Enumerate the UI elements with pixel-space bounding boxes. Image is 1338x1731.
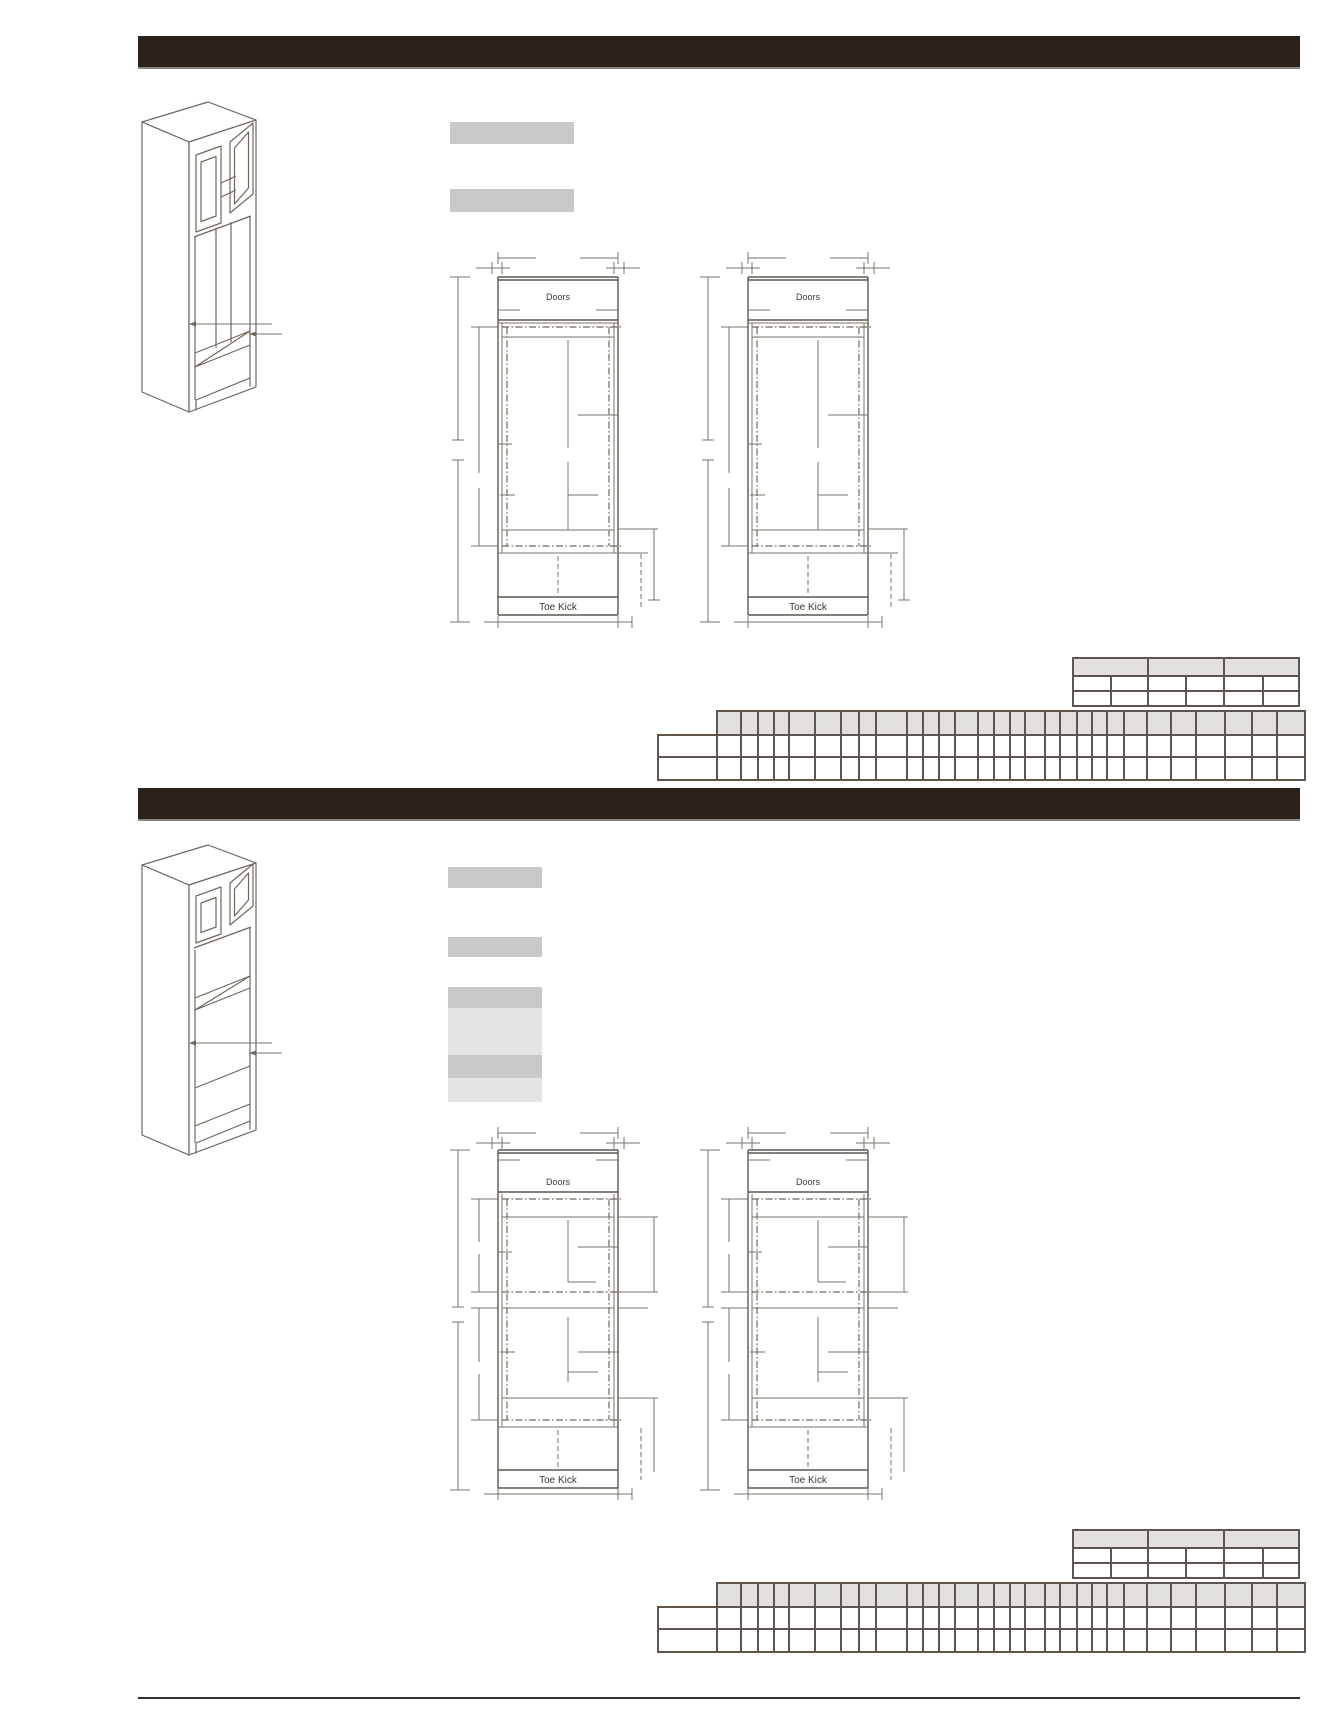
table-cell [1123,734,1148,758]
table-cell [1251,710,1278,736]
table-cell [1170,1606,1197,1630]
table-cell [1146,756,1172,781]
table-cell [788,1582,816,1608]
table-cell [814,1606,842,1630]
table-cell [954,1582,979,1608]
table-cell [1262,1562,1300,1579]
table-cell [1251,756,1278,781]
table-cell [1251,734,1278,758]
table-cell [814,1628,842,1653]
table-cell [1195,734,1226,758]
table-cell [1024,1606,1046,1630]
table-cell [954,1606,979,1630]
table-cell [1146,710,1172,736]
table-cell [1170,710,1197,736]
section2-elevation-right [686,1122,916,1502]
table-cell [716,1582,742,1608]
table-cell [1147,690,1187,707]
table-cell [1170,1582,1197,1608]
section1-title-bar [138,36,1300,69]
table-cell [1224,734,1253,758]
table-cell [1170,1628,1197,1653]
table-cell [716,1628,742,1653]
table-cell [1251,1606,1278,1630]
table-cell [1123,756,1148,781]
table-cell [840,710,860,736]
table-cell [875,710,908,736]
table-cell [1276,756,1306,781]
footer-rule [138,1697,1300,1699]
section2-isometric-microwave-cabinet [132,838,292,1160]
table-cell [875,1628,908,1653]
table-cell [1072,657,1149,677]
table-cell [1276,734,1306,758]
section2-elevation-left [436,1122,666,1502]
section1-redacted-label-1 [450,122,574,144]
section1-elevation-right [686,248,916,640]
table-cell [1110,1562,1149,1579]
table-cell [1185,1562,1225,1579]
table-cell [657,734,718,758]
table-cell [954,1628,979,1653]
table-cell [1072,690,1112,707]
section2-title-bar [138,788,1300,821]
table-cell [1024,1582,1046,1608]
table-cell [1224,710,1253,736]
section2-dimension-matrix-table [657,1582,1304,1651]
section1-elevation-left [436,248,666,640]
table-cell [1170,756,1197,781]
table-cell [788,1606,816,1630]
table-cell [1024,756,1046,781]
table-cell [1072,1529,1149,1549]
section2-redacted-label-1 [448,867,542,888]
table-cell [716,710,742,736]
table-cell [1123,710,1148,736]
table-cell [1195,756,1226,781]
section2-redacted-label-3 [448,987,542,1008]
section2-size-table [1072,1529,1298,1577]
table-cell [1123,1582,1148,1608]
table-cell [1146,734,1172,758]
table-cell [1024,1628,1046,1653]
section2-redacted-label-4 [448,1055,542,1078]
table-cell [1195,1628,1226,1653]
table-cell [1224,1606,1253,1630]
table-cell [840,1606,860,1630]
table-cell [840,756,860,781]
table-cell [875,734,908,758]
table-cell [954,710,979,736]
table-cell [1223,657,1300,677]
table-cell [788,1628,816,1653]
table-cell [1276,1582,1306,1608]
table-cell [1147,1562,1187,1579]
table-cell [814,710,842,736]
table-cell [875,756,908,781]
catalog-page: Doors Toe Kick [0,0,1338,1731]
table-cell [1195,1606,1226,1630]
table-cell [954,756,979,781]
section1-isometric-oven-cabinet [132,95,292,417]
table-cell [716,756,742,781]
table-cell [1147,657,1225,677]
table-cell [716,734,742,758]
table-cell [1251,1582,1278,1608]
table-cell [1146,1582,1172,1608]
table-cell [1123,1628,1148,1653]
table-cell [875,1582,908,1608]
table-cell [1224,756,1253,781]
section1-size-table [1072,657,1298,705]
table-cell [840,1628,860,1653]
table-cell [1146,1606,1172,1630]
table-cell [1185,690,1225,707]
table-cell [657,1606,718,1630]
table-cell [657,1628,718,1653]
table-cell [875,1606,908,1630]
table-cell [1223,1562,1264,1579]
table-cell [840,1582,860,1608]
table-cell [1195,710,1226,736]
table-cell [1123,1606,1148,1630]
section2-redacted-block-1 [448,1008,542,1055]
table-cell [814,734,842,758]
table-cell [1195,1582,1226,1608]
table-cell [716,1606,742,1630]
section2-redacted-block-2 [448,1078,542,1102]
table-cell [1146,1628,1172,1653]
table-cell [1110,690,1149,707]
table-cell [1251,1628,1278,1653]
table-cell [1147,1529,1225,1549]
table-cell [788,756,816,781]
table-cell [1224,1582,1253,1608]
table-cell [814,1582,842,1608]
table-cell [657,756,718,781]
table-cell [1224,1628,1253,1653]
table-cell [1276,710,1306,736]
table-cell [814,756,842,781]
table-cell [1024,710,1046,736]
table-cell [840,734,860,758]
table-cell [1276,1606,1306,1630]
table-cell [1024,734,1046,758]
table-cell [1072,1562,1112,1579]
table-cell [1170,734,1197,758]
table-cell [1276,1628,1306,1653]
section2-redacted-label-2 [448,937,542,957]
table-cell [1223,1529,1300,1549]
section1-redacted-label-2 [450,189,574,212]
table-cell [954,734,979,758]
section1-dimension-matrix-table [657,710,1304,779]
table-cell [788,734,816,758]
table-cell [1223,690,1264,707]
table-cell [1262,690,1300,707]
table-cell [788,710,816,736]
